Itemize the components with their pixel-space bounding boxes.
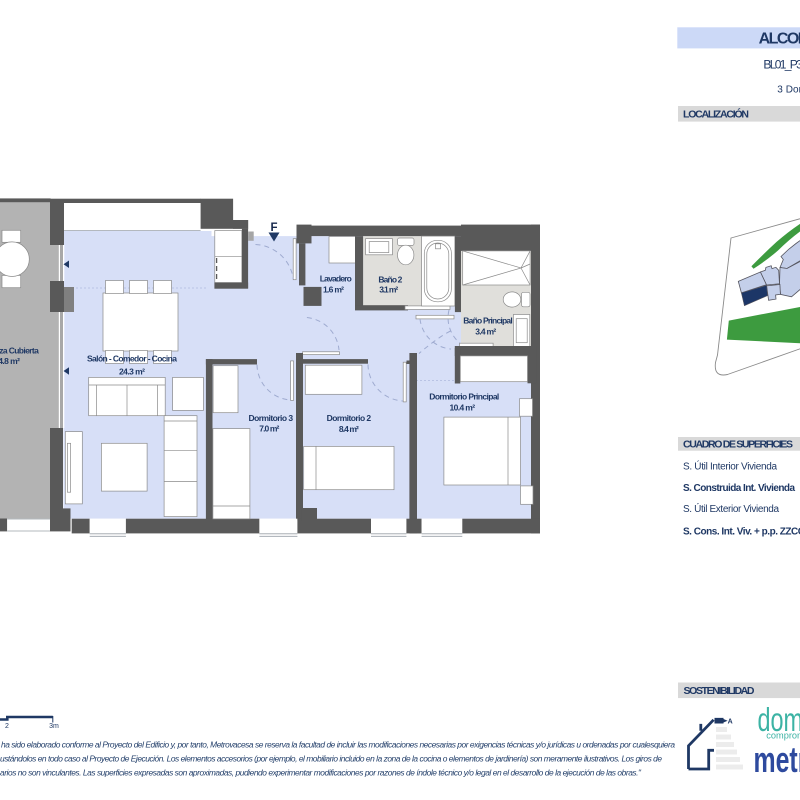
svg-text:Terraza Cubierta: Terraza Cubierta	[0, 346, 39, 356]
svg-text:Dormitorio 3: Dormitorio 3	[249, 413, 294, 423]
svg-text:24.8 m²: 24.8 m²	[0, 356, 20, 366]
svg-text:3.1 m²: 3.1 m²	[379, 285, 398, 295]
svg-text:Baño 2: Baño 2	[378, 275, 402, 285]
svg-text:Baño Principal: Baño Principal	[463, 316, 513, 326]
svg-text:arios no son vinculantes. Las: arios no son vinculantes. Las superficie…	[0, 767, 642, 777]
svg-text:ALCORA H: ALCORA H	[759, 31, 800, 48]
svg-text:3 Dormitorios: 3 Dormitorios	[777, 85, 800, 96]
svg-text:2: 2	[5, 723, 9, 730]
svg-text:8.4 m²: 8.4 m²	[339, 424, 359, 434]
svg-text:1.6 m²: 1.6 m²	[323, 285, 344, 295]
svg-text:3m: 3m	[49, 723, 59, 730]
svg-text:S. Útil Exterior Vivienda: S. Útil Exterior Vivienda	[683, 502, 779, 515]
svg-text:SOSTENIBILIDAD: SOSTENIBILIDAD	[684, 685, 755, 697]
svg-text:F: F	[270, 222, 277, 234]
svg-text:Salón - Comedor - Cocina: Salón - Comedor - Cocina	[87, 354, 177, 364]
svg-text:S. Cons. Int. Viv. + p.p. ZZCC: S. Cons. Int. Viv. + p.p. ZZCC	[683, 526, 800, 537]
svg-text:S. Útil Interior Vivienda: S. Útil Interior Vivienda	[683, 459, 777, 472]
svg-text:3.4 m²: 3.4 m²	[475, 327, 496, 337]
svg-text:LOCALIZACIÓN: LOCALIZACIÓN	[683, 108, 749, 121]
svg-text:ustándolos en todo caso al Pro: ustándolos en todo caso al Proyecto de E…	[0, 753, 662, 763]
svg-text:10.4 m²: 10.4 m²	[450, 403, 476, 413]
svg-text:ha sido elaborado conforme al: ha sido elaborado conforme al Proyecto d…	[1, 739, 675, 749]
svg-text:S. Construida Int. Vivienda: S. Construida Int. Vivienda	[683, 483, 795, 494]
svg-text:Dormitorio Principal: Dormitorio Principal	[429, 392, 499, 402]
svg-text:CUADRO DE SUPERFICIES: CUADRO DE SUPERFICIES	[683, 439, 793, 451]
svg-text:metrovacesa: metrovacesa	[754, 739, 800, 780]
svg-text:Dormitorio 2: Dormitorio 2	[327, 413, 372, 423]
svg-text:Lavadero: Lavadero	[320, 274, 352, 284]
svg-text:24.3 m²: 24.3 m²	[119, 367, 145, 377]
svg-text:7.0 m²: 7.0 m²	[259, 424, 279, 434]
svg-text:BL01_P3_B A: BL01_P3_B A	[763, 58, 800, 72]
svg-text:A: A	[728, 718, 733, 725]
